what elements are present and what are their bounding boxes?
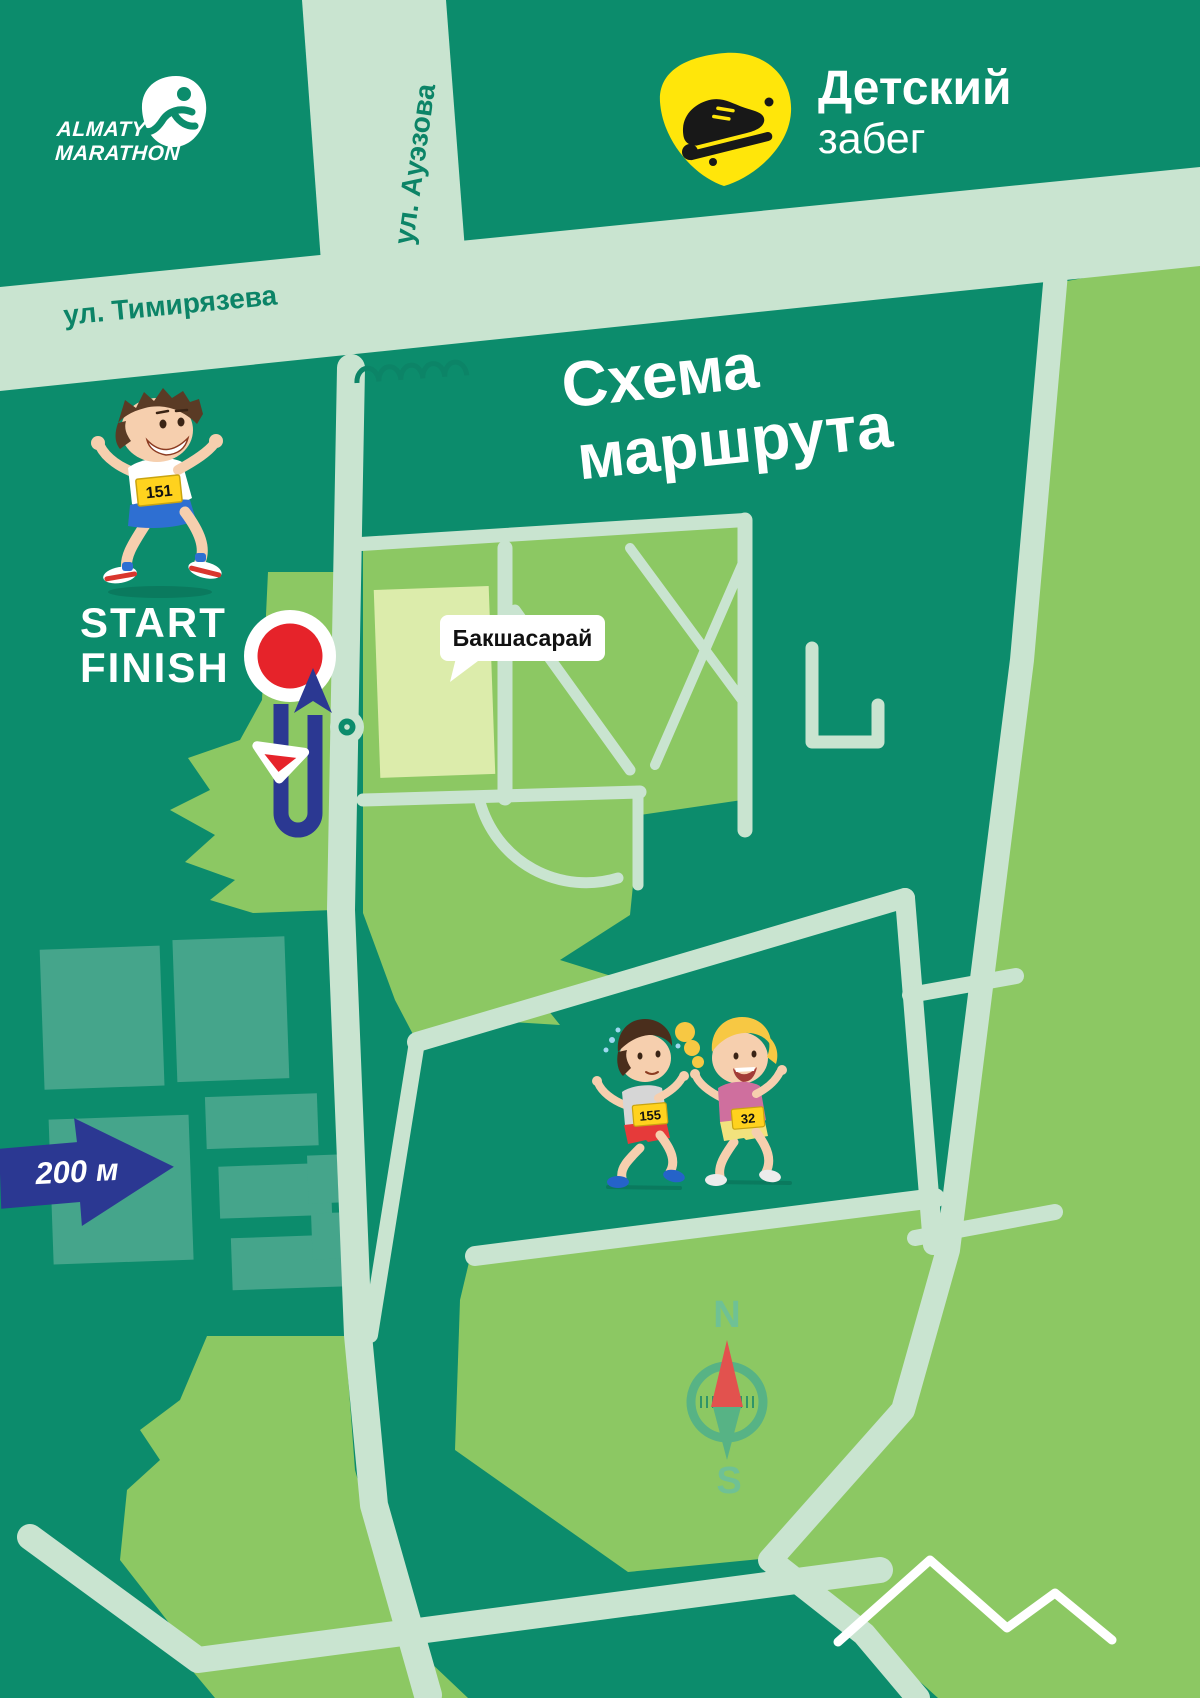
compass-south-label: S [707, 1460, 751, 1503]
scale-label: 200 м [21, 1151, 133, 1193]
shadow [108, 586, 212, 598]
bib-155: 155 [632, 1103, 668, 1127]
park-path [363, 792, 640, 800]
event-title-line1: Детский [818, 62, 1011, 116]
building [307, 1155, 339, 1204]
logo-line2: MARATHON [54, 142, 181, 166]
poi-label-bakshasaray: Бакшасарай [440, 615, 605, 661]
compass-north-label: N [705, 1294, 749, 1337]
start-finish-label: START FINISH [80, 600, 230, 690]
event-title-line2: забег [818, 116, 1011, 162]
bib-151: 151 [136, 475, 183, 506]
bib-32: 32 [731, 1107, 765, 1130]
roundabout [330, 710, 364, 744]
building [205, 1093, 319, 1149]
building [172, 936, 289, 1082]
map-canvas: 151 [0, 0, 1200, 1698]
route-map-poster: 151 [0, 0, 1200, 1698]
event-title: Детский забег [818, 62, 1011, 162]
bib-number: 32 [740, 1110, 756, 1126]
start-label: START [80, 600, 230, 645]
logo-line1: ALMATY [56, 118, 183, 142]
almaty-marathon-logo-text: ALMATY MARATHON [54, 118, 182, 166]
finish-label: FINISH [80, 645, 230, 690]
bib-number: 151 [145, 483, 173, 503]
bib-number: 155 [639, 1107, 662, 1124]
building [40, 946, 165, 1090]
